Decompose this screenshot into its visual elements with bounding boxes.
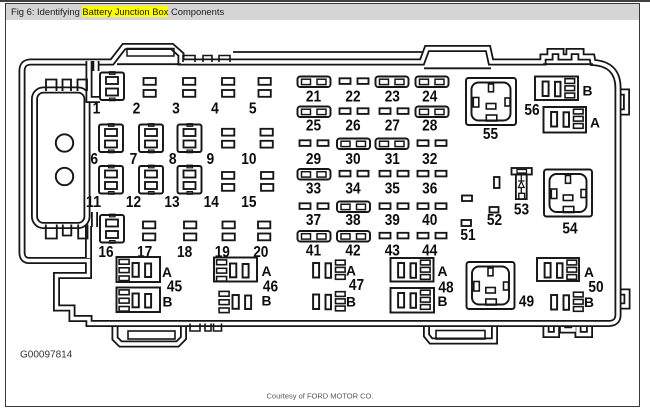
svg-text:23: 23 — [385, 89, 400, 106]
svg-text:B: B — [583, 84, 593, 99]
svg-text:10: 10 — [241, 151, 256, 168]
svg-text:25: 25 — [306, 118, 321, 135]
svg-text:43: 43 — [385, 243, 400, 260]
svg-text:11: 11 — [86, 194, 101, 211]
svg-text:B: B — [163, 295, 173, 310]
svg-text:15: 15 — [241, 194, 256, 211]
svg-text:Courtesy of FORD MOTOR CO.: Courtesy of FORD MOTOR CO. — [267, 392, 374, 401]
svg-text:A: A — [584, 265, 594, 280]
svg-text:21: 21 — [306, 89, 321, 106]
svg-text:G00097814: G00097814 — [20, 350, 73, 361]
svg-text:B: B — [438, 294, 448, 309]
svg-text:A: A — [590, 116, 600, 131]
svg-text:33: 33 — [306, 181, 321, 198]
svg-text:7: 7 — [130, 151, 138, 168]
svg-text:56: 56 — [524, 102, 539, 119]
svg-text:44: 44 — [422, 243, 437, 260]
svg-text:53: 53 — [514, 202, 529, 219]
svg-text:8: 8 — [169, 151, 177, 168]
svg-text:47: 47 — [349, 277, 364, 294]
svg-text:51: 51 — [460, 227, 475, 244]
svg-text:1: 1 — [93, 101, 101, 118]
svg-text:35: 35 — [385, 181, 400, 198]
svg-text:13: 13 — [164, 194, 179, 211]
svg-text:49: 49 — [519, 294, 534, 311]
svg-text:B: B — [584, 295, 594, 310]
svg-text:3: 3 — [172, 101, 180, 118]
svg-text:55: 55 — [483, 126, 498, 143]
svg-text:30: 30 — [345, 151, 360, 168]
svg-text:B: B — [262, 294, 272, 309]
svg-text:39: 39 — [385, 212, 400, 229]
svg-text:16: 16 — [98, 244, 113, 261]
svg-text:26: 26 — [345, 118, 360, 135]
svg-text:22: 22 — [345, 89, 360, 106]
svg-text:B: B — [346, 295, 356, 310]
svg-text:34: 34 — [345, 181, 360, 198]
svg-text:36: 36 — [422, 181, 437, 198]
svg-text:40: 40 — [422, 212, 437, 229]
svg-text:41: 41 — [306, 243, 321, 260]
svg-text:4: 4 — [211, 101, 219, 118]
svg-text:50: 50 — [588, 279, 603, 296]
svg-text:9: 9 — [207, 151, 215, 168]
svg-text:5: 5 — [249, 101, 257, 118]
svg-text:37: 37 — [306, 212, 321, 229]
svg-text:31: 31 — [385, 151, 400, 168]
svg-text:42: 42 — [345, 243, 360, 260]
svg-text:38: 38 — [345, 212, 360, 229]
svg-text:28: 28 — [422, 118, 437, 135]
svg-text:A: A — [262, 264, 272, 279]
svg-text:52: 52 — [487, 212, 502, 229]
svg-text:24: 24 — [422, 89, 437, 106]
svg-text:A: A — [438, 264, 448, 279]
svg-text:18: 18 — [177, 244, 192, 261]
svg-text:29: 29 — [306, 151, 321, 168]
svg-text:6: 6 — [90, 151, 98, 168]
svg-text:12: 12 — [126, 194, 141, 211]
svg-text:27: 27 — [385, 118, 400, 135]
svg-text:2: 2 — [133, 101, 141, 118]
svg-text:45: 45 — [167, 279, 182, 296]
svg-text:32: 32 — [422, 151, 437, 168]
svg-text:17: 17 — [137, 244, 152, 261]
svg-text:54: 54 — [562, 221, 577, 238]
svg-text:14: 14 — [204, 194, 219, 211]
